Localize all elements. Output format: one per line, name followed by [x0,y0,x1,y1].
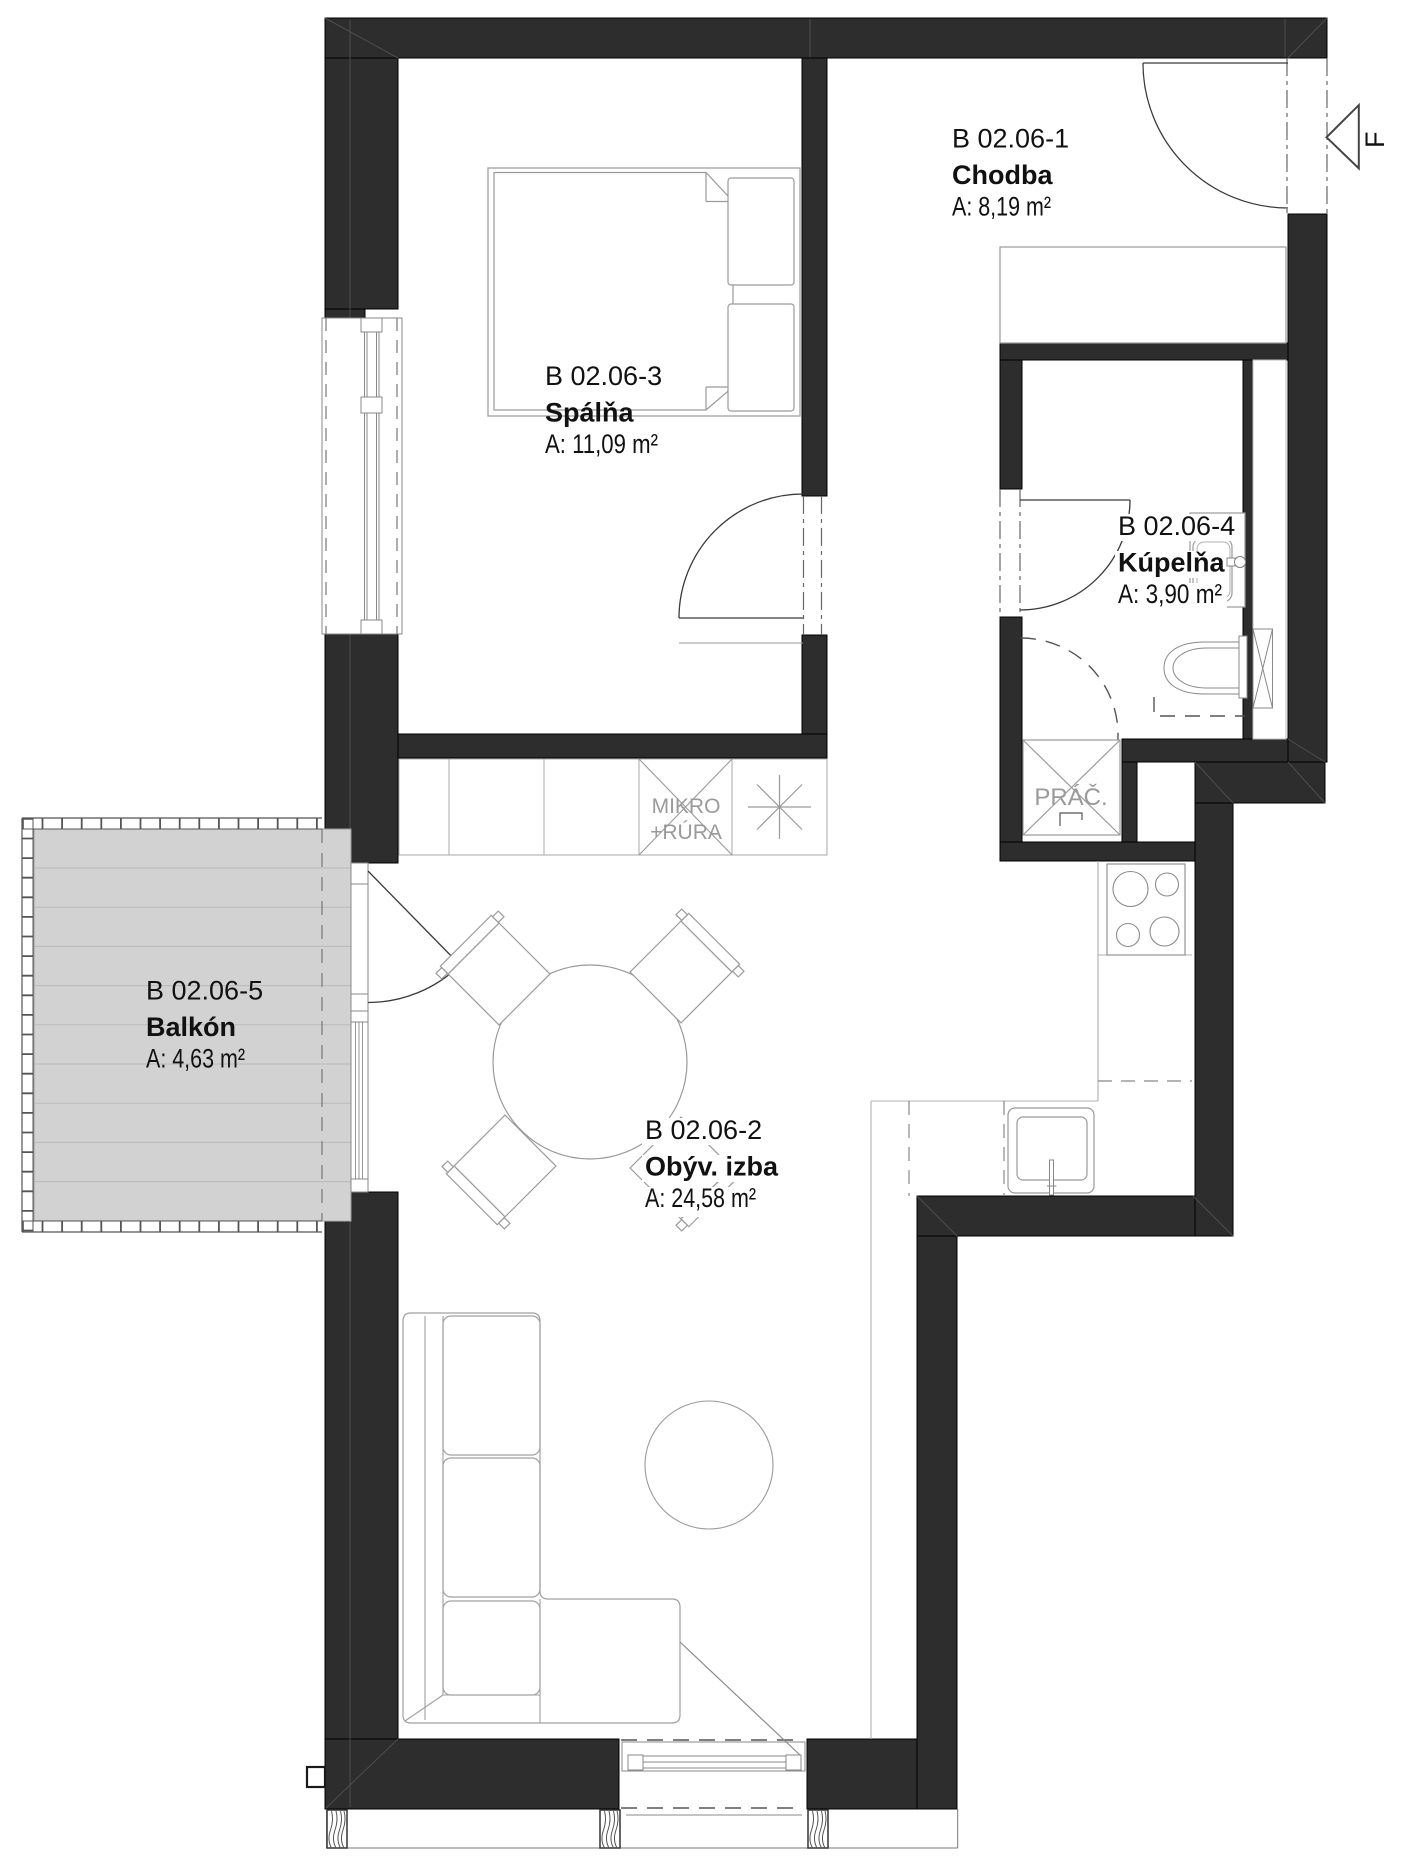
svg-text:Spálňa: Spálňa [545,398,635,428]
svg-text:Chodba: Chodba [952,160,1053,190]
svg-text:A: 4,63 m²: A: 4,63 m² [146,1044,245,1074]
svg-text:B 02.06-1: B 02.06-1 [952,124,1069,154]
svg-text:A: 3,90 m²: A: 3,90 m² [1118,579,1222,609]
svg-text:B 02.06-4: B 02.06-4 [1118,511,1235,541]
svg-text:B 02.06-3: B 02.06-3 [545,361,662,391]
svg-text:+RÚRA: +RÚRA [650,821,722,844]
svg-text:B 02.06-2: B 02.06-2 [645,1115,762,1145]
svg-text:Obýv. izba: Obýv. izba [645,1152,779,1182]
svg-text:A: 24,58 m²: A: 24,58 m² [645,1183,756,1213]
svg-text:A: 11,09 m²: A: 11,09 m² [545,429,658,459]
svg-text:F: F [1360,132,1390,149]
svg-text:A: 8,19 m²: A: 8,19 m² [952,192,1051,222]
svg-text:Balkón: Balkón [146,1012,236,1042]
svg-text:B 02.06-5: B 02.06-5 [146,976,263,1006]
svg-text:PRÁČ.: PRÁČ. [1034,783,1107,811]
svg-text:MIKRO: MIKRO [652,795,721,818]
svg-text:Kúpelňa: Kúpelňa [1118,548,1225,578]
